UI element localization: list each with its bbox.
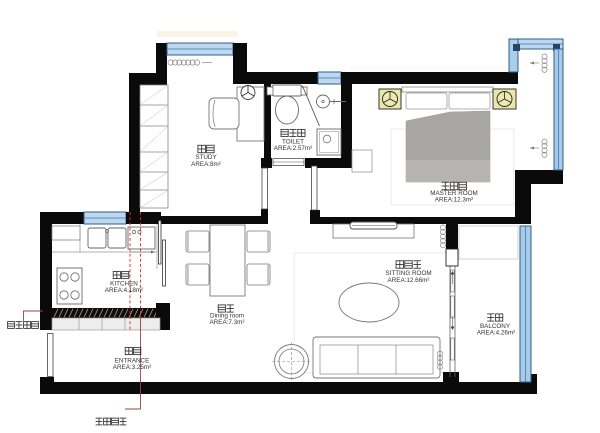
svg-text:AREA:4.18m²: AREA:4.18m² <box>105 287 144 294</box>
svg-text:AREA:12.3m²: AREA:12.3m² <box>435 197 474 204</box>
svg-text:AREA:7.3m²: AREA:7.3m² <box>210 319 245 326</box>
svg-text:STUDY: STUDY <box>195 154 217 161</box>
svg-text:AREA:12.66m²: AREA:12.66m² <box>388 277 430 284</box>
svg-text:AREA:2.57m²: AREA:2.57m² <box>274 145 313 152</box>
svg-text:SITTING ROOM: SITTING ROOM <box>385 270 431 277</box>
svg-text:AREA:4.26m²: AREA:4.26m² <box>477 330 516 337</box>
svg-text:AREA:8m²: AREA:8m² <box>191 161 221 168</box>
svg-text:AREA:3.25m²: AREA:3.25m² <box>113 364 152 371</box>
